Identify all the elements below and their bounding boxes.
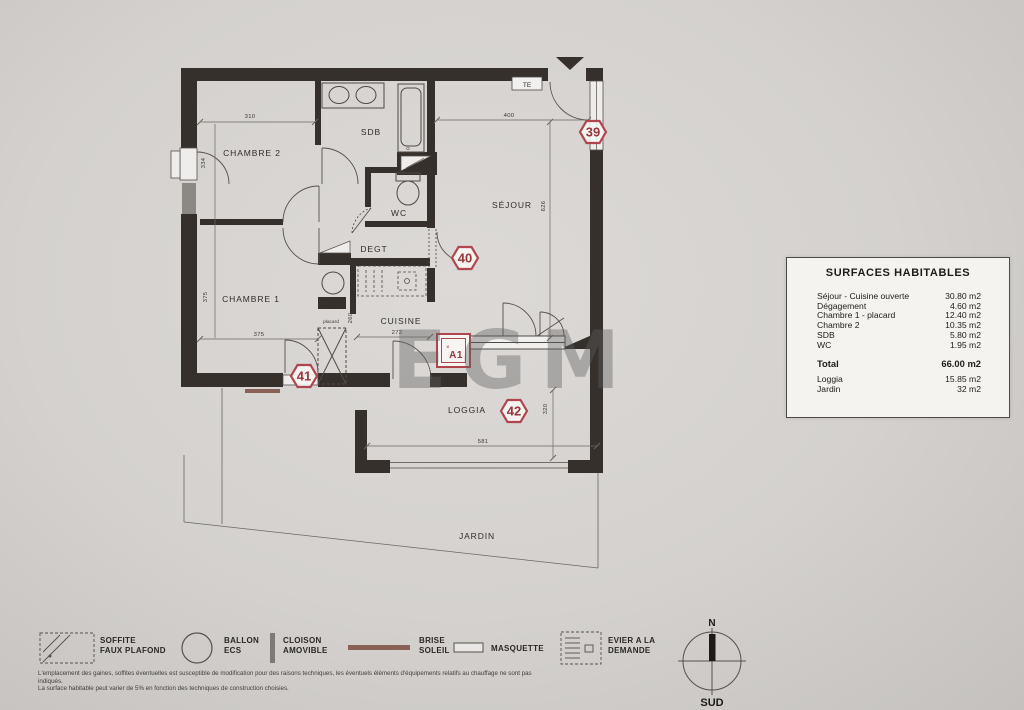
- svg-text:39: 39: [586, 125, 600, 140]
- svg-text:A1: A1: [449, 350, 463, 361]
- room-label-sdb: SDB: [361, 127, 381, 137]
- dim-chambre2-width: 310: [245, 114, 256, 120]
- brise-soleil-symbol-icon: [348, 645, 410, 650]
- dim-chambre1-depth: 375: [203, 291, 209, 302]
- marker-a1: × A1: [437, 334, 470, 367]
- room-label-cuisine: CUISINE: [381, 316, 422, 326]
- cloison-symbol-icon: [270, 633, 275, 663]
- legend-cloison-line2: AMOVIBLE: [283, 646, 328, 655]
- placard-label: placard: [323, 319, 339, 325]
- room-label-chambre1: CHAMBRE 1: [222, 294, 280, 304]
- te-label: TE: [523, 82, 532, 89]
- legend-cloison-line1: CLOISON: [283, 636, 322, 645]
- svg-text:40: 40: [458, 251, 472, 266]
- compass-south-label: SUD: [700, 697, 723, 709]
- table-title: SURFACES HABITABLES: [787, 267, 1009, 279]
- loggia-railing: [390, 463, 568, 469]
- legend-masquette-line1: MASQUETTE: [491, 644, 544, 653]
- legend-evier-line2: DEMANDE: [608, 646, 651, 655]
- garden-boundary: [184, 388, 598, 568]
- dim-sejour-depth: 626: [541, 200, 547, 211]
- disclaimer-line1: L'emplacement des gaines, soffites évent…: [38, 670, 532, 685]
- legend-ballon-line2: ECS: [224, 646, 242, 655]
- gaine-label: G: [406, 146, 410, 152]
- legend-soffite-line1: SOFFITE: [100, 636, 136, 645]
- dim-cuisine-width: 272: [392, 330, 403, 336]
- evier-symbol-icon: [561, 632, 601, 664]
- legend-brise-line1: BRISE: [419, 636, 445, 645]
- legend: SOFFITE FAUX PLAFOND BALLON ECS CLOISON …: [40, 632, 655, 664]
- disclaimer: L'emplacement des gaines, soffites évent…: [38, 670, 532, 693]
- water-heater: [322, 272, 344, 294]
- table-row: WC1.95 m2: [817, 341, 981, 351]
- room-label-wc: WC: [391, 208, 407, 218]
- surfaces-table: SURFACES HABITABLES Séjour - Cuisine ouv…: [786, 257, 1010, 418]
- dim-loggia-width: 581: [478, 439, 489, 445]
- dim-chambre1-width: 375: [254, 332, 265, 338]
- double-sink-vanity: [322, 83, 384, 108]
- toilet: [396, 173, 420, 205]
- masquette-symbol-icon: [454, 643, 483, 652]
- floorplan-photo: 310 400 334 626 375 375 272 260 581 320 …: [0, 0, 1024, 710]
- room-label-chambre2: CHAMBRE 2: [223, 148, 281, 158]
- dim-chambre2-window: 334: [201, 157, 207, 168]
- bathtub: [398, 84, 424, 152]
- dimension-labels: 310 400 334 626 375 375 272 260 581 320 …: [201, 113, 549, 445]
- exterior-walls: [181, 68, 603, 473]
- room-label-jardin: JARDIN: [459, 531, 495, 541]
- ballon-symbol-icon: [182, 633, 212, 663]
- marker-41: 41: [291, 365, 317, 387]
- legend-ballon-line1: BALLON: [224, 636, 259, 645]
- dim-loggia-depth: 320: [543, 403, 549, 414]
- room-label-sejour: SÉJOUR: [492, 200, 532, 210]
- compass-north-label: N: [708, 618, 715, 629]
- marker-42: 42: [501, 400, 527, 422]
- dim-sejour-width: 400: [504, 113, 515, 119]
- compass-north-needle: [709, 634, 716, 661]
- svg-text:41: 41: [297, 369, 311, 384]
- room-label-degt: DEGT: [360, 244, 387, 254]
- marker-40: 40: [452, 247, 478, 269]
- legend-evier-line1: EVIER A LA: [608, 636, 655, 645]
- legend-soffite-line2: FAUX PLAFOND: [100, 646, 166, 655]
- compass: N SUD: [678, 618, 746, 709]
- marker-39: 39: [580, 121, 606, 143]
- disclaimer-line2: La surface habitable peut varier de 5% e…: [38, 685, 532, 693]
- kitchen-counter-dashed: [358, 266, 426, 296]
- soffit-symbol-icon: [40, 633, 94, 663]
- table-row: Jardin32 m2: [817, 385, 981, 395]
- table-total-row: Total66.00 m2: [817, 358, 981, 369]
- room-label-loggia: LOGGIA: [448, 405, 486, 415]
- brise-soleil-segment: [245, 389, 280, 393]
- dim-placard-depth: 260: [348, 312, 354, 323]
- svg-text:42: 42: [507, 404, 521, 419]
- legend-brise-line2: SOLEIL: [419, 646, 450, 655]
- entrance-arrow-icon: [556, 57, 584, 70]
